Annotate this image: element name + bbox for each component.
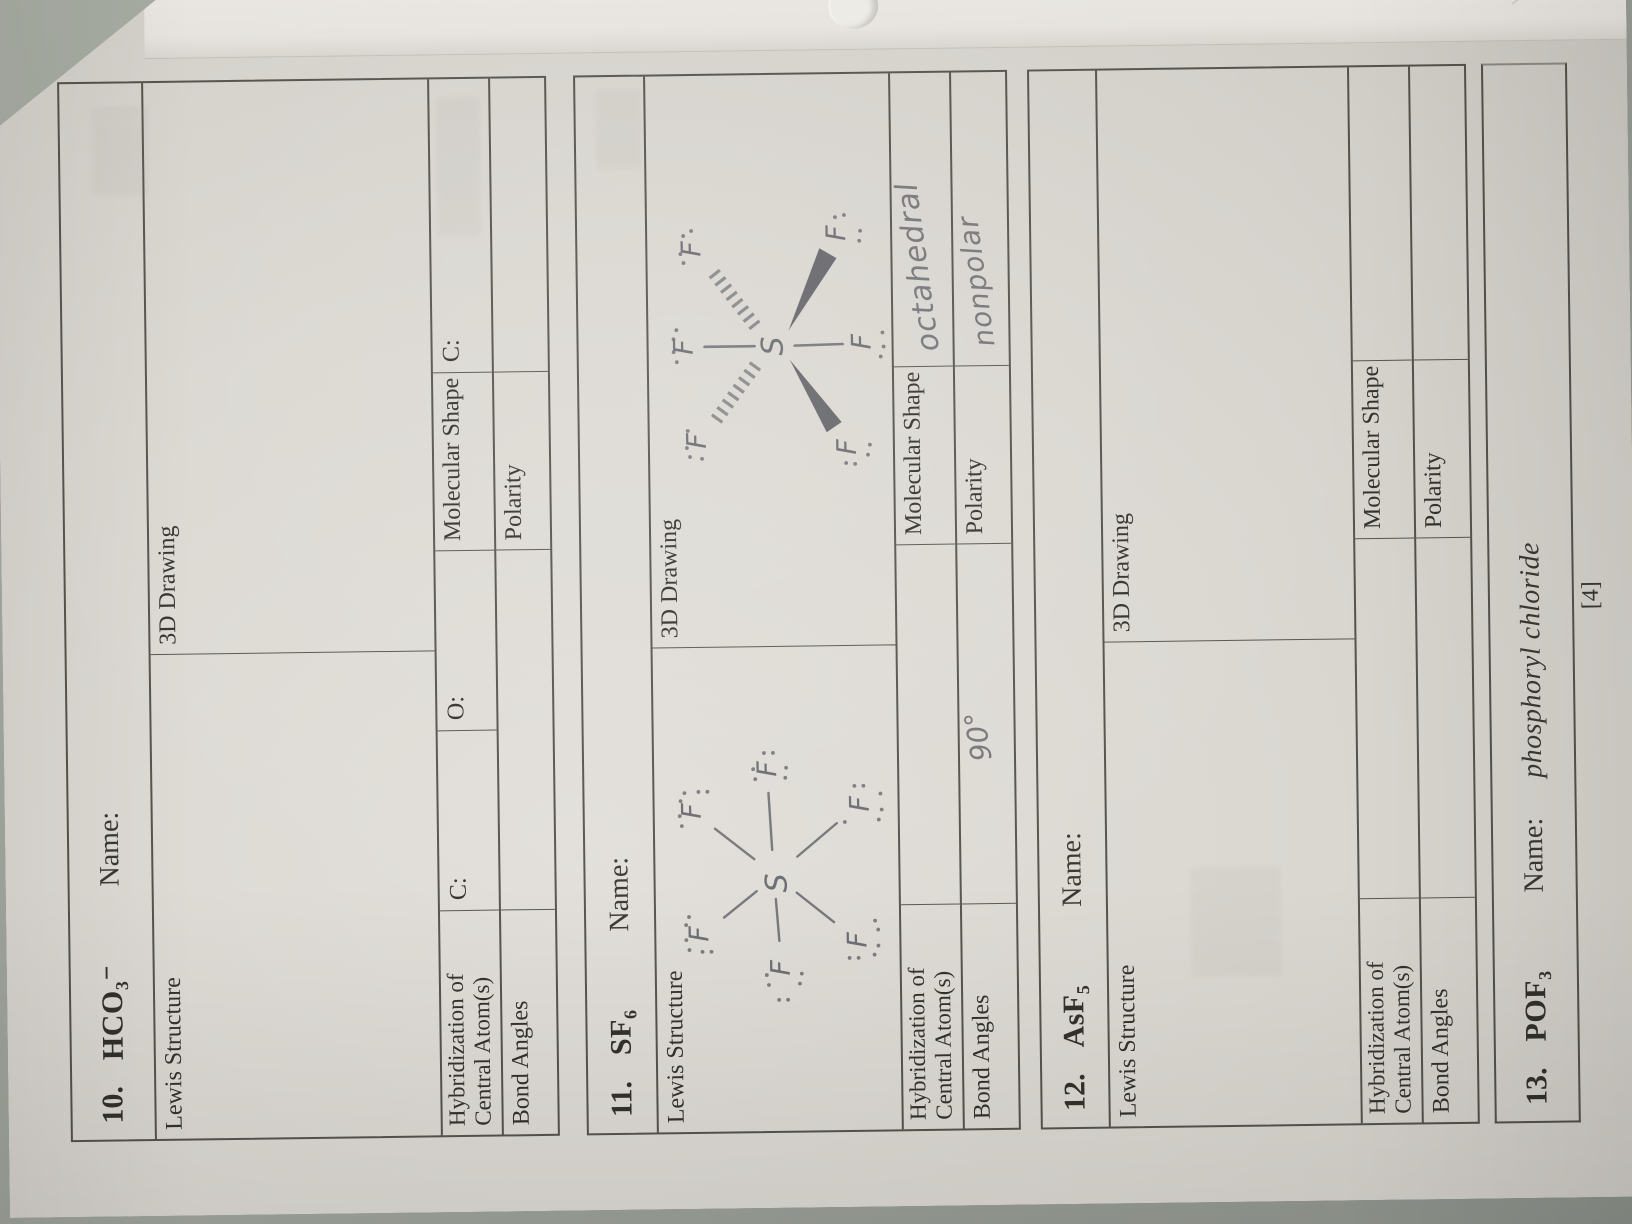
hybridization-label-line2: Central Atom(s)	[1389, 965, 1416, 1114]
problem-number: 13.	[1520, 1067, 1554, 1105]
table10-header: 10. HCO₃⁻ Name:	[59, 83, 157, 1140]
hybridization-answer-cell	[896, 544, 960, 905]
handwritten-molecular-shape: octahedral	[889, 180, 947, 354]
problem-number: 12.	[1058, 1073, 1092, 1111]
polarity-label: Polarity	[961, 458, 989, 534]
hybridization-label-line2: Central Atom(s)	[469, 977, 496, 1126]
fluorine-atom: F	[842, 931, 873, 947]
page-number: [4]	[1578, 581, 1605, 609]
solid-wedge-bond	[790, 359, 842, 433]
o-slot-label: O:	[443, 696, 470, 720]
problem-table-10: 10. HCO₃⁻ Name: Lewis Structure 3D Drawi…	[57, 76, 560, 1142]
sulfur-atom: S	[760, 873, 795, 893]
fluorine-atom: F	[846, 333, 877, 349]
molecular-shape-label-cell: Molecular Shape	[894, 366, 955, 545]
handwritten-bond-angles: 90°	[958, 709, 999, 764]
fluorine-atom: F	[752, 761, 783, 777]
name-label: Name:	[94, 812, 127, 887]
molecular-shape-label-cell: Molecular Shape	[1353, 360, 1414, 539]
fluorine-atom: F	[684, 925, 715, 941]
problem-formula: AsF₅	[1057, 985, 1092, 1048]
hybridization-label-line2: Central Atom(s)	[930, 971, 957, 1120]
polarity-label: Polarity	[500, 464, 528, 540]
3d-drawing-label: 3D Drawing	[1108, 513, 1137, 633]
hybridization-o-slot-cell: O:	[435, 550, 496, 731]
3d-drawing-cell: 3D Drawing S F F F	[645, 73, 895, 647]
name-label: Name:	[603, 857, 636, 932]
bleedthrough-smudge	[435, 97, 481, 238]
molecular-shape-label: Molecular Shape	[899, 372, 928, 536]
polarity-label-cell: Polarity	[955, 365, 1011, 544]
polarity-label: Polarity	[1420, 452, 1448, 528]
worksheet-page: 10. HCO₃⁻ Name: Lewis Structure 3D Drawi…	[0, 0, 1632, 1218]
hybridization-label-cell: Hybridization of Central Atom(s)	[440, 910, 502, 1136]
polarity-label-cell: Polarity	[1414, 359, 1470, 538]
sulfur-atom: S	[755, 336, 790, 356]
bleedthrough-smudge	[91, 106, 148, 197]
name-label: Name:	[1518, 818, 1551, 893]
hybridization-label-line1: Hybridization of	[1363, 961, 1390, 1114]
molecular-shape-label-cell: Molecular Shape	[433, 372, 494, 551]
lewis-structure-label: Lewis Structure	[1114, 965, 1143, 1118]
fluorine-atom: F	[844, 795, 875, 811]
fluorine-atom: F	[832, 439, 863, 455]
hybridization-answer-cell	[1355, 538, 1419, 899]
bond-angles-answer-cell: 90°	[957, 543, 1016, 904]
molecular-shape-answer-cell: octahedral	[890, 73, 953, 367]
polarity-label-cell: Polarity	[494, 371, 550, 550]
problem-formula: HCO₃⁻	[94, 964, 130, 1060]
problem-table-11: 11. SF₆ Name: Lewis Structure	[573, 70, 1021, 1136]
dashed-wedge-bond	[715, 365, 757, 421]
bleedthrough-smudge	[595, 90, 642, 171]
3d-drawing-cell: 3D Drawing	[143, 79, 434, 654]
molecular-shape-label: Molecular Shape	[438, 378, 467, 542]
polarity-answer-cell	[1410, 66, 1468, 360]
3d-drawing-label: 3D Drawing	[154, 525, 183, 645]
bond-angles-label: Bond Angles	[968, 994, 997, 1119]
bond-angles-label: Bond Angles	[507, 1000, 536, 1125]
lewis-structure-label: Lewis Structure	[160, 977, 189, 1130]
hybridization-label-line1: Hybridization of	[443, 973, 470, 1126]
table13-header: 13. POF₃ Name: phosphoryl chloride	[1483, 65, 1579, 1122]
molecular-shape-label: Molecular Shape	[1358, 366, 1387, 530]
bond-angles-label-cell: Bond Angles	[501, 909, 558, 1135]
sf6-3d-drawing: S F F F F F F	[645, 71, 891, 647]
shape-c-slot-label: C:	[438, 339, 465, 362]
drawing-row: Lewis Structure S F F	[645, 73, 904, 1132]
sf6-lewis-structure-drawing: S F F F F F F	[653, 646, 898, 1132]
hybridization-label-cell: Hybridization of Central Atom(s)	[1360, 898, 1422, 1124]
problem-number: 11.	[605, 1081, 639, 1117]
hybridization-label-cell: Hybridization of Central Atom(s)	[901, 904, 963, 1130]
polarity-answer-cell	[490, 78, 548, 372]
hybridization-c-slot-cell: C:	[438, 730, 499, 911]
handwritten-polarity: nonpolar	[951, 214, 1001, 349]
solid-wedge-bond	[787, 248, 837, 331]
lewis-structure-cell: Lewis Structure S F F	[653, 644, 902, 1132]
name-label: Name:	[1056, 832, 1089, 907]
problem-formula: SF₆	[604, 1009, 639, 1055]
fluorine-atom: F	[821, 225, 852, 241]
3d-drawing-cell: 3D Drawing	[1097, 67, 1354, 641]
compound-name-value: phosphoryl chloride	[1514, 542, 1549, 778]
fluorine-atom: F	[766, 959, 797, 975]
dashed-wedge-bond	[711, 268, 756, 327]
molecular-shape-answer-cell	[1349, 67, 1412, 361]
drawing-row: Lewis Structure 3D Drawing	[143, 79, 443, 1139]
polarity-answer-cell: nonpolar	[951, 72, 1009, 366]
bond-angles-label: Bond Angles	[1427, 988, 1456, 1113]
lewis-structure-cell: Lewis Structure	[151, 650, 441, 1139]
bond-angles-answer-cell	[1416, 537, 1475, 898]
hybridization-label-line1: Hybridization of	[904, 967, 931, 1120]
problem-formula: POF₃	[1519, 970, 1554, 1041]
bleedthrough-smudge	[1190, 866, 1281, 977]
bond-angles-answer-cell	[496, 549, 555, 910]
worksheet-photo: 10. HCO₃⁻ Name: Lewis Structure 3D Drawi…	[0, 0, 1632, 1224]
bond-angles-label-cell: Bond Angles	[962, 903, 1019, 1129]
bond-angles-label-cell: Bond Angles	[1421, 897, 1478, 1123]
problem-table-13: 13. POF₃ Name: phosphoryl chloride	[1481, 62, 1581, 1123]
c-slot-label: C:	[446, 877, 473, 900]
underlying-sheet-edge	[144, 0, 1627, 59]
problem-number: 10.	[96, 1086, 130, 1124]
